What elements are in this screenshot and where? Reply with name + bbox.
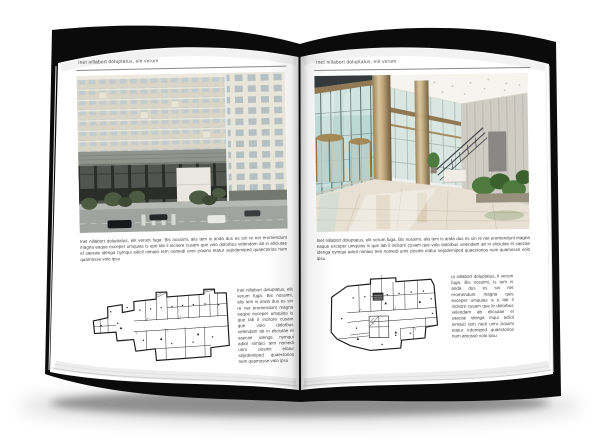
right-running-header: Inet nillabort doluptatus, elit verum — [316, 57, 530, 66]
right-running-header-text: Inet nillabort doluptatus, elit verum — [316, 57, 518, 65]
left-figure-row: Inet nillabort doluptatus, elit verum fu… — [81, 287, 293, 371]
right-page-content: Inet nillabort doluptatus, elit verum — [314, 49, 534, 358]
building-exterior-photo — [76, 72, 287, 233]
book-mockup: Inet nillabort doluptatus, elit verum — [0, 0, 600, 446]
left-running-header: Inet nillabort doluptatus, elit verum — [78, 56, 286, 66]
right-header-rule — [314, 67, 530, 71]
right-figure-row: ut nillabort doluptatus, il verum fuga. … — [317, 273, 534, 358]
right-figure-caption: ut nillabort doluptatus, il verum fuga. … — [451, 273, 514, 354]
lobby-interior-photo — [314, 73, 529, 232]
right-body-paragraph: Inet nillabort doluptatus, elit verum fu… — [317, 235, 533, 264]
core-block — [373, 293, 384, 301]
main-building-facade — [76, 73, 226, 154]
left-body-paragraph: Inet nillabort doluptatus, elit verum fu… — [80, 235, 290, 265]
left-running-header-text: Inet nillabort doluptatus, elit verum — [78, 56, 280, 66]
left-header-rule — [76, 66, 286, 71]
room-markers — [100, 303, 220, 346]
revolving-doors — [316, 133, 371, 182]
reception-desk — [444, 170, 466, 182]
left-floor-plan — [87, 288, 231, 367]
right-floor-plan — [321, 274, 444, 358]
left-page-content: Inet nillabort doluptatus, elit verum — [76, 50, 293, 371]
left-figure-caption: Inet nillabort doluptatus, elit verum fu… — [237, 287, 295, 368]
